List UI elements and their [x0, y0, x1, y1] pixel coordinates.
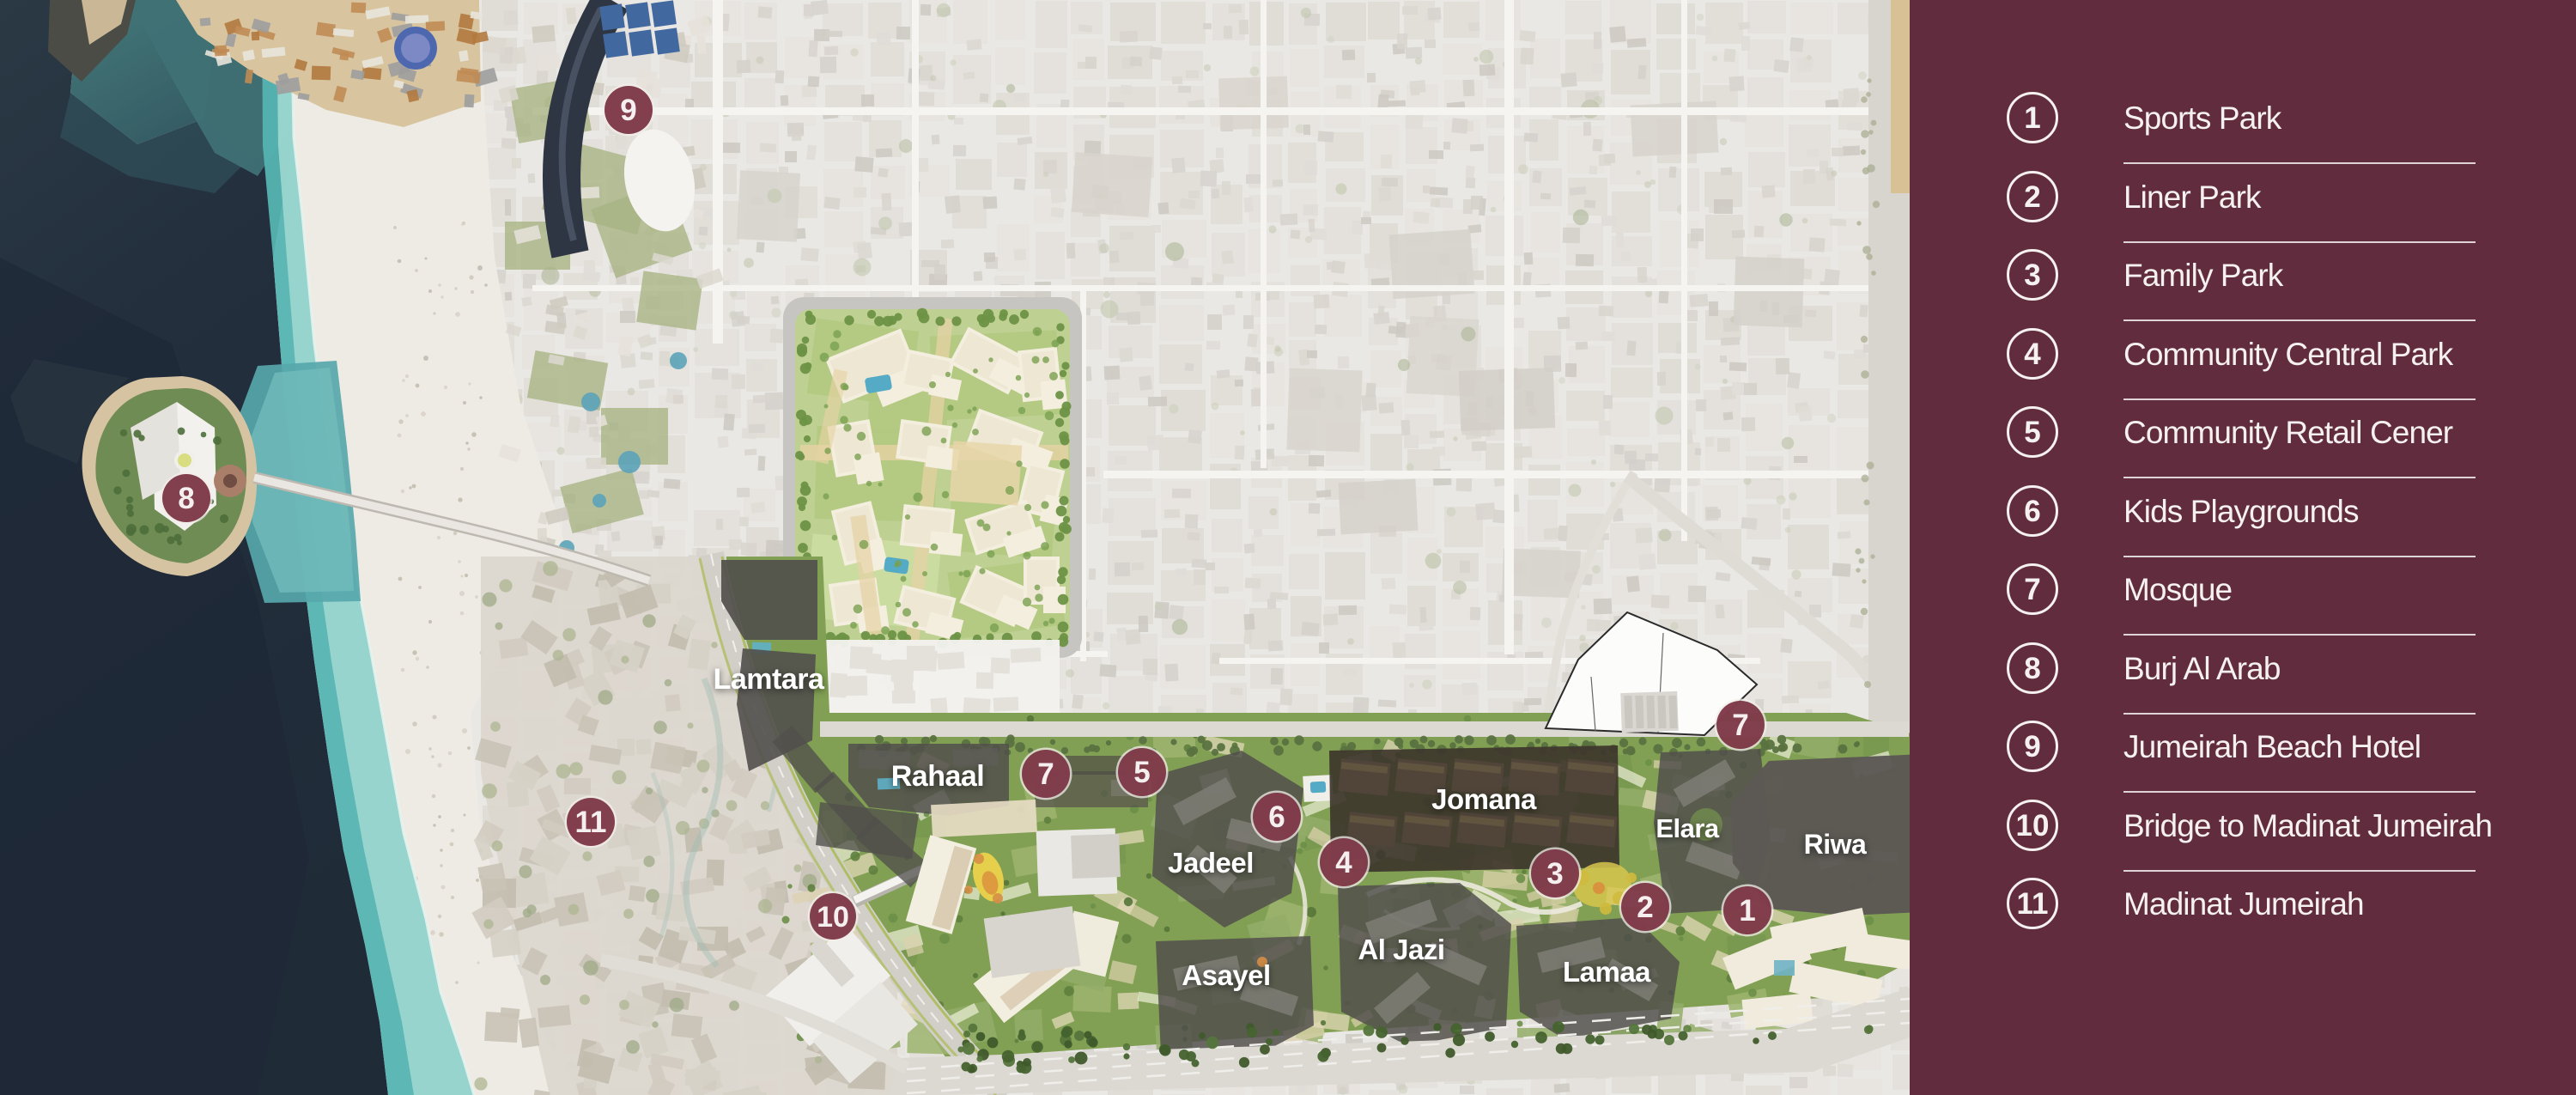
svg-text:7: 7	[1037, 757, 1054, 791]
svg-text:Lamaa: Lamaa	[1563, 956, 1651, 988]
svg-text:Lamtara: Lamtara	[714, 663, 825, 696]
svg-text:9: 9	[620, 94, 636, 127]
svg-text:Rahaal: Rahaal	[891, 760, 985, 793]
svg-text:1: 1	[1739, 894, 1755, 928]
svg-text:Asayel: Asayel	[1182, 959, 1270, 991]
svg-text:8: 8	[178, 482, 194, 515]
svg-text:Al Jazi: Al Jazi	[1358, 934, 1444, 965]
svg-text:4: 4	[1335, 846, 1352, 879]
svg-text:6: 6	[1268, 800, 1285, 834]
svg-text:10: 10	[817, 901, 849, 934]
svg-text:11: 11	[575, 806, 607, 839]
svg-text:Jadeel: Jadeel	[1168, 847, 1254, 879]
svg-text:2: 2	[1637, 891, 1653, 924]
svg-text:5: 5	[1133, 756, 1150, 789]
svg-text:Jomana: Jomana	[1431, 783, 1537, 815]
svg-text:Elara: Elara	[1656, 813, 1720, 843]
svg-text:3: 3	[1546, 857, 1563, 891]
svg-text:7: 7	[1732, 709, 1748, 742]
svg-text:Riwa: Riwa	[1804, 829, 1867, 860]
